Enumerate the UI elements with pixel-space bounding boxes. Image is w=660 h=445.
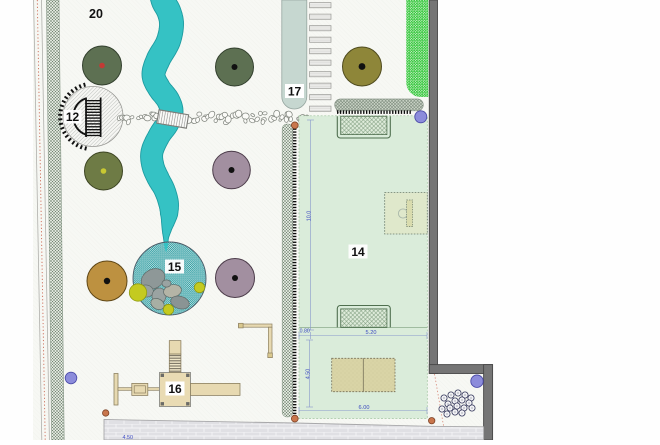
svg-text:15: 15 [168, 260, 182, 274]
svg-text:6.00: 6.00 [359, 405, 370, 411]
svg-text:20: 20 [89, 7, 103, 21]
svg-text:16: 16 [168, 382, 182, 396]
svg-text:14: 14 [351, 245, 365, 259]
svg-text:0.80: 0.80 [300, 329, 310, 335]
svg-text:10.0: 10.0 [307, 211, 313, 222]
svg-text:4.50: 4.50 [123, 435, 134, 440]
svg-text:17: 17 [288, 85, 302, 99]
svg-text:12: 12 [66, 110, 80, 124]
svg-text:5.20: 5.20 [366, 330, 377, 336]
svg-text:4.50: 4.50 [306, 369, 312, 380]
